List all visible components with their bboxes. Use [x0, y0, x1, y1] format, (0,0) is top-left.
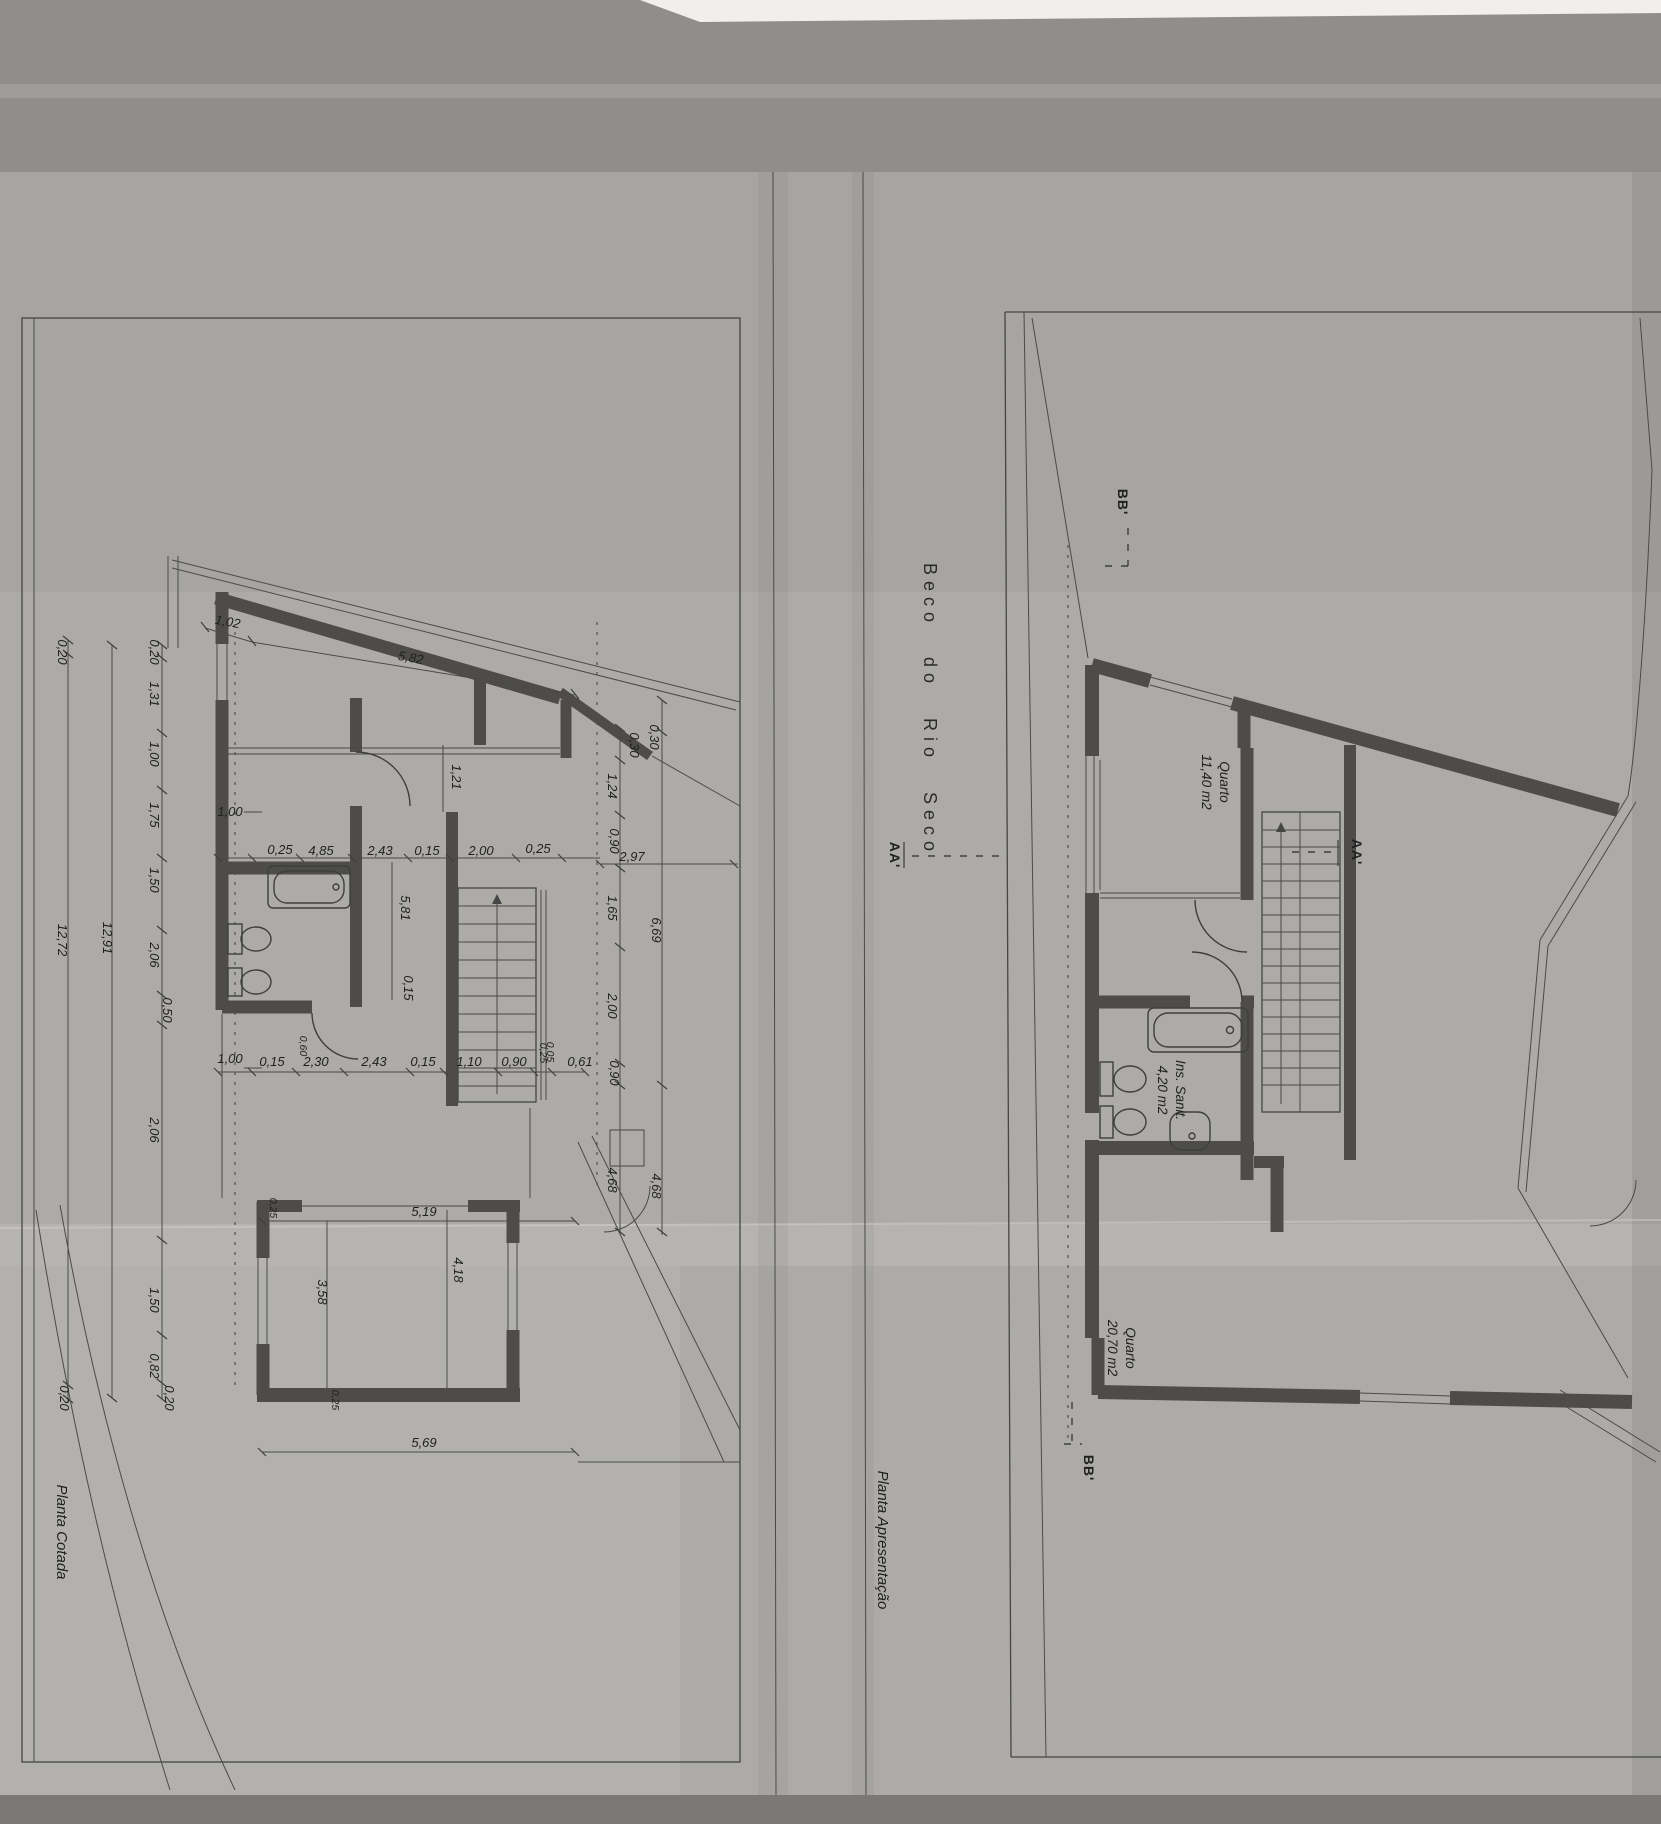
dim-label: 0,50: [160, 997, 175, 1023]
sheet-bottom-edge: [0, 1795, 1661, 1824]
dim-label: 5,19: [411, 1204, 436, 1219]
dim-label: 0,15: [410, 1054, 436, 1069]
dim-label: 0,15: [259, 1054, 285, 1069]
dim-label: 1,75: [147, 802, 162, 828]
dim-label: 12,72: [55, 924, 70, 957]
dim-label: 0,25: [329, 1390, 341, 1411]
dim-label: 0,61: [567, 1054, 592, 1069]
room-name: Ins. Sanit.: [1173, 1060, 1188, 1120]
street-title: Beco do Rio Seco: [920, 563, 940, 857]
dim-label: 1,50: [147, 867, 162, 893]
dim-label: 2,00: [467, 843, 494, 858]
dim-label: 0,90: [607, 828, 622, 854]
left-plan-bathroom-fixtures: [228, 866, 350, 996]
dim-label: 0,25: [267, 842, 293, 857]
toilet: [1114, 1066, 1146, 1092]
fold-crease-line: [0, 1220, 1661, 1228]
toilet-tank: [228, 924, 242, 954]
dim-label: 5,82: [397, 648, 425, 667]
dim-label: 1,24: [605, 773, 620, 798]
fold-highlight-band: [0, 1224, 1661, 1266]
section-marker-aa-right: AA': [1349, 839, 1365, 866]
dim-label: 2,30: [302, 1054, 329, 1069]
bidet: [241, 970, 271, 994]
dim-label: 0,25: [267, 1198, 279, 1219]
dim-label: 0,20: [162, 1385, 177, 1411]
dim-label: 5,81: [398, 895, 413, 920]
dim-label: 0,60: [297, 1036, 309, 1057]
right-plan: BB' BB' AA' AA' Quarto 11,40 m2 Ins. San…: [874, 312, 1661, 1757]
bidet-base: [1100, 1106, 1113, 1138]
dim-label: 5,69: [411, 1435, 436, 1450]
dim-label: 1,00: [217, 1051, 243, 1066]
left-plan-frame: [22, 318, 740, 1762]
dim-label: 1,21: [449, 764, 464, 789]
dim-label: 1,50: [147, 1287, 162, 1313]
dim-label: 4,68: [649, 1173, 664, 1199]
paper-shading: [0, 0, 1661, 1824]
dim-label: 4,68: [605, 1167, 620, 1193]
room-labels: Quarto 11,40 m2 Ins. Sanit. 4,20 m2 Quar…: [1105, 754, 1232, 1376]
dim-label: 1,65: [605, 895, 620, 921]
room-name: Quarto: [1217, 761, 1232, 803]
section-marker-aa-left: AA': [887, 842, 903, 869]
dim-label: 0,82: [147, 1353, 162, 1379]
dim-label: 0,20: [147, 639, 162, 665]
dim-label: 1,00: [217, 804, 243, 819]
bidet: [1114, 1109, 1146, 1135]
left-plan-staircase: [458, 888, 536, 1102]
section-marker-bb-bottom: BB': [1081, 1455, 1097, 1482]
section-lines: [904, 528, 1338, 1445]
room-area: 4,20 m2: [1155, 1066, 1170, 1115]
dim-label: 0,90: [607, 1060, 622, 1086]
dim-label: 0,25: [537, 1043, 549, 1064]
dim-label: 0,25: [525, 841, 551, 856]
room-name: Quarto: [1123, 1327, 1138, 1369]
right-plan-walls: [1092, 665, 1632, 1402]
sheet-top-edge: [0, 0, 1661, 172]
room-area: 20,70 m2: [1105, 1319, 1120, 1377]
dim-label: 2,06: [147, 941, 162, 968]
dim-label: 0,30: [627, 732, 642, 758]
dim-label: 2,06: [147, 1116, 162, 1143]
right-plan-windows: [1086, 677, 1450, 1404]
stair-arrow-head: [492, 894, 502, 904]
dim-label: 2,43: [360, 1054, 387, 1069]
dim-label: 4,85: [308, 843, 334, 858]
dim-label: 1,31: [147, 681, 162, 706]
section-marker-bb-top: BB': [1115, 489, 1131, 516]
dim-label: 2,00: [605, 992, 620, 1019]
right-plan-staircase: [1262, 812, 1340, 1112]
right-plan-doors: [1192, 900, 1247, 1002]
drawing-sheet: Beco do Rio Seco: [0, 0, 1661, 1824]
dim-label: 6,69: [649, 917, 664, 942]
dim-label: 0,15: [401, 975, 416, 1001]
dim-label: 0,90: [501, 1054, 527, 1069]
plan-caption-left: Planta Cotada: [53, 1484, 70, 1579]
dim-label: 3,58: [315, 1279, 330, 1305]
plan-caption-right: Planta Apresentação: [874, 1471, 891, 1610]
toilet: [241, 927, 271, 951]
dim-label: 1,00: [147, 741, 162, 767]
dim-label: 4,18: [451, 1257, 466, 1283]
toilet-tank: [1100, 1062, 1113, 1096]
dim-label: 0,30: [647, 724, 662, 750]
dim-label: 12,91: [100, 922, 115, 955]
left-plan: 1,02 5,82 0,20 12,72 0,20 12,91 0,20 1,3…: [22, 318, 740, 1790]
dim-label: 2,43: [366, 843, 393, 858]
room-area: 11,40 m2: [1199, 754, 1214, 810]
stair-arrow-head: [1276, 822, 1286, 832]
dim-label: 0,20: [55, 639, 70, 665]
scanned-floor-plan-photo: Beco do Rio Seco: [0, 0, 1661, 1824]
paper-edge-highlight: [640, 0, 1661, 22]
dim-label: 1,10: [456, 1054, 482, 1069]
dim-label: 0,15: [414, 843, 440, 858]
left-plan-walls: [216, 592, 650, 1395]
fold-lines: [773, 172, 866, 1795]
dim-label: 0,20: [57, 1385, 72, 1411]
